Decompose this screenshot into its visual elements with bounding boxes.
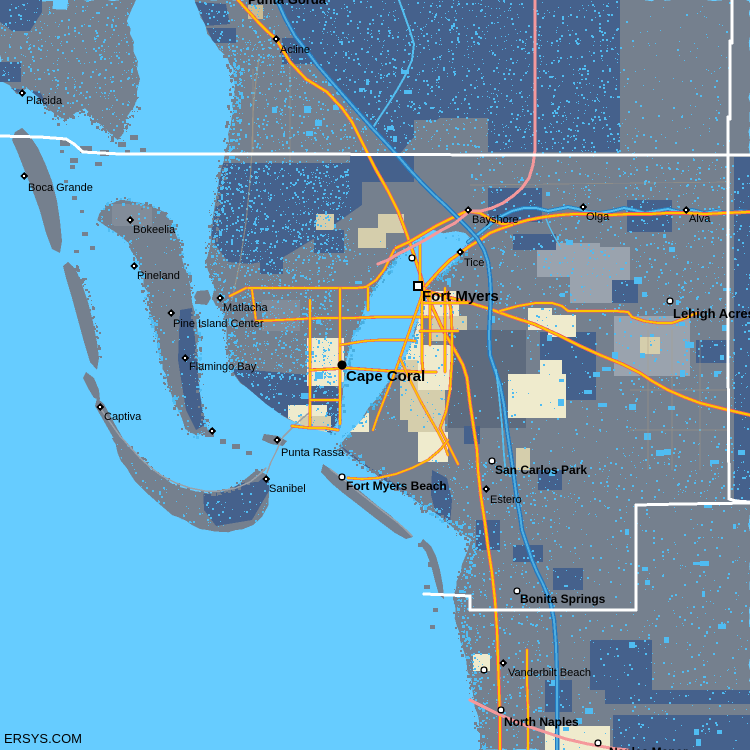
svg-text:Tice: Tice: [464, 257, 484, 269]
svg-text:Lehigh Acres: Lehigh Acres: [673, 306, 750, 321]
svg-text:Pine Island Center: Pine Island Center: [173, 318, 264, 330]
svg-text:Fort Myers: Fort Myers: [422, 288, 499, 305]
svg-text:Pineland: Pineland: [137, 270, 180, 282]
svg-text:Naples Manor: Naples Manor: [609, 745, 688, 750]
svg-text:Sanibel: Sanibel: [269, 483, 306, 495]
svg-text:Matlacha: Matlacha: [223, 302, 269, 314]
svg-text:Acline: Acline: [280, 44, 310, 56]
svg-text:Punta Gorda: Punta Gorda: [248, 0, 327, 7]
svg-text:Bonita Springs: Bonita Springs: [520, 592, 606, 606]
svg-text:Placida: Placida: [26, 95, 63, 107]
svg-text:Olga: Olga: [586, 211, 610, 223]
svg-text:Alva: Alva: [689, 213, 711, 225]
svg-text:Flamingo Bay: Flamingo Bay: [189, 361, 257, 373]
svg-text:Bokeelia: Bokeelia: [133, 224, 176, 236]
svg-text:San Carlos Park: San Carlos Park: [495, 463, 587, 477]
svg-text:Fort Myers Beach: Fort Myers Beach: [346, 479, 447, 493]
svg-text:Estero: Estero: [490, 494, 522, 506]
svg-text:Bayshore: Bayshore: [472, 214, 518, 226]
svg-text:Punta Rassa: Punta Rassa: [281, 447, 345, 459]
svg-text:Captiva: Captiva: [104, 411, 142, 423]
svg-text:Boca Grande: Boca Grande: [28, 182, 93, 194]
svg-text:Vanderbilt Beach: Vanderbilt Beach: [508, 667, 591, 679]
svg-text:Cape Coral: Cape Coral: [346, 368, 425, 385]
svg-text:North Naples: North Naples: [504, 715, 579, 729]
svg-text:ERSYS.COM: ERSYS.COM: [4, 731, 82, 746]
